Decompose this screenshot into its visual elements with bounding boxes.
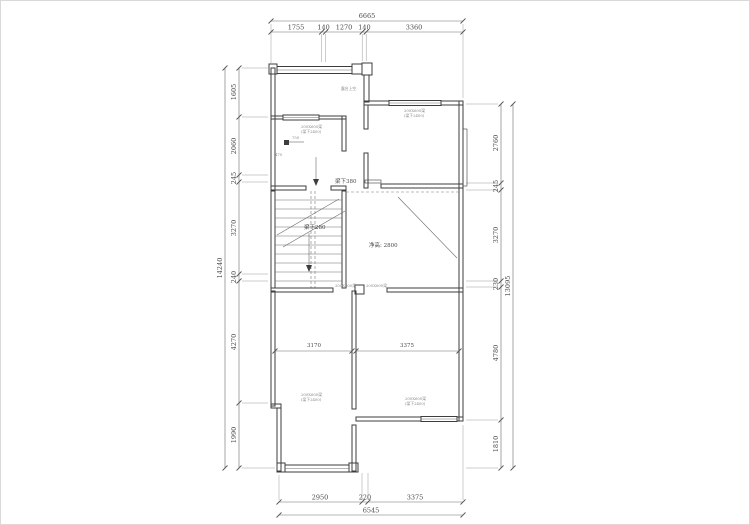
dim-left-seg-7: 1990	[230, 427, 238, 444]
dim-right-total: 13095	[504, 276, 512, 297]
dim-bottom-seg-1: 2950	[312, 494, 329, 502]
dim-left-seg-4: 3270	[230, 220, 238, 237]
direction-arrow-icon	[313, 179, 319, 186]
floor-drain-icon	[284, 140, 289, 145]
beam-note-stair: 梁下280	[304, 223, 326, 231]
dim-left-seg-3: 245	[230, 172, 238, 184]
beam-annotation-right-of-column: 200X600梁	[366, 283, 387, 288]
bathroom-beam-annotation-2: (梁下2400)	[301, 129, 322, 134]
lower-left-annotation-2: (梁下2400)	[301, 397, 322, 402]
dim-top-seg-3: 1270	[336, 24, 353, 32]
dim-top-seg-2: 140	[317, 24, 329, 32]
top-right-room-walls: 200X600梁 (梁下2400)	[364, 101, 467, 422]
floor-plan-drawing: 6665 1755 140 1270 140 3360 14240 1605 2…	[1, 1, 750, 525]
bathroom-dim-750: 750	[292, 135, 300, 140]
lower-band-walls: 200X600梁 200X600梁	[271, 283, 463, 294]
dim-right-seg-3: 3270	[492, 227, 500, 244]
dim-left-total: 14240	[216, 258, 224, 279]
room-dim-left: 3170	[307, 343, 321, 349]
dim-right-seg-2: 245	[492, 180, 500, 192]
room-dim-right: 3375	[400, 343, 414, 349]
dim-right-seg-4: 230	[492, 278, 500, 290]
beam-note-mid: 梁下380	[335, 177, 357, 185]
dim-right-seg-1: 2760	[492, 135, 500, 152]
dim-top-total: 6665	[359, 12, 376, 20]
extension-lines	[242, 24, 498, 500]
clear-height-note: 净高: 2800	[369, 241, 398, 249]
dim-left-seg-6: 4270	[230, 334, 238, 351]
window-annotation-top-room-2: (梁下2400)	[404, 113, 425, 118]
dim-top-seg-1: 1755	[288, 24, 305, 32]
living-room: 梁下380 净高: 2800	[335, 177, 459, 258]
lower-left-room: 3170 200X600梁 (梁下2400)	[271, 291, 358, 472]
terrace-walls: 露台上空	[269, 63, 372, 116]
staircase: 梁下280	[271, 191, 346, 288]
lower-right-annotation-2: (梁下2400)	[405, 401, 426, 406]
beam-annotation-left-of-column: 200X600梁	[335, 283, 356, 288]
dim-top-seg-4: 140	[358, 24, 370, 32]
dim-left-seg-2: 2060	[230, 138, 238, 155]
dim-right-seg-5: 4780	[492, 345, 500, 362]
dim-right-seg-6: 1810	[492, 436, 500, 453]
dim-left-seg-5: 240	[230, 271, 238, 283]
floor-plan-canvas: 6665 1755 140 1270 140 3360 14240 1605 2…	[0, 0, 750, 525]
bathroom-dim-470: 470	[275, 152, 283, 157]
dim-bottom-seg-2: 220	[359, 494, 371, 502]
dim-top-seg-5: 3360	[406, 24, 423, 32]
dim-bottom-total: 6545	[363, 507, 380, 515]
dim-left-seg-1: 1605	[230, 84, 238, 101]
terrace-label: 露台上空	[341, 86, 356, 91]
lower-right-room: 3375 200X600梁 (梁下2400)	[354, 343, 464, 422]
dim-bottom-seg-3: 3375	[407, 494, 424, 502]
